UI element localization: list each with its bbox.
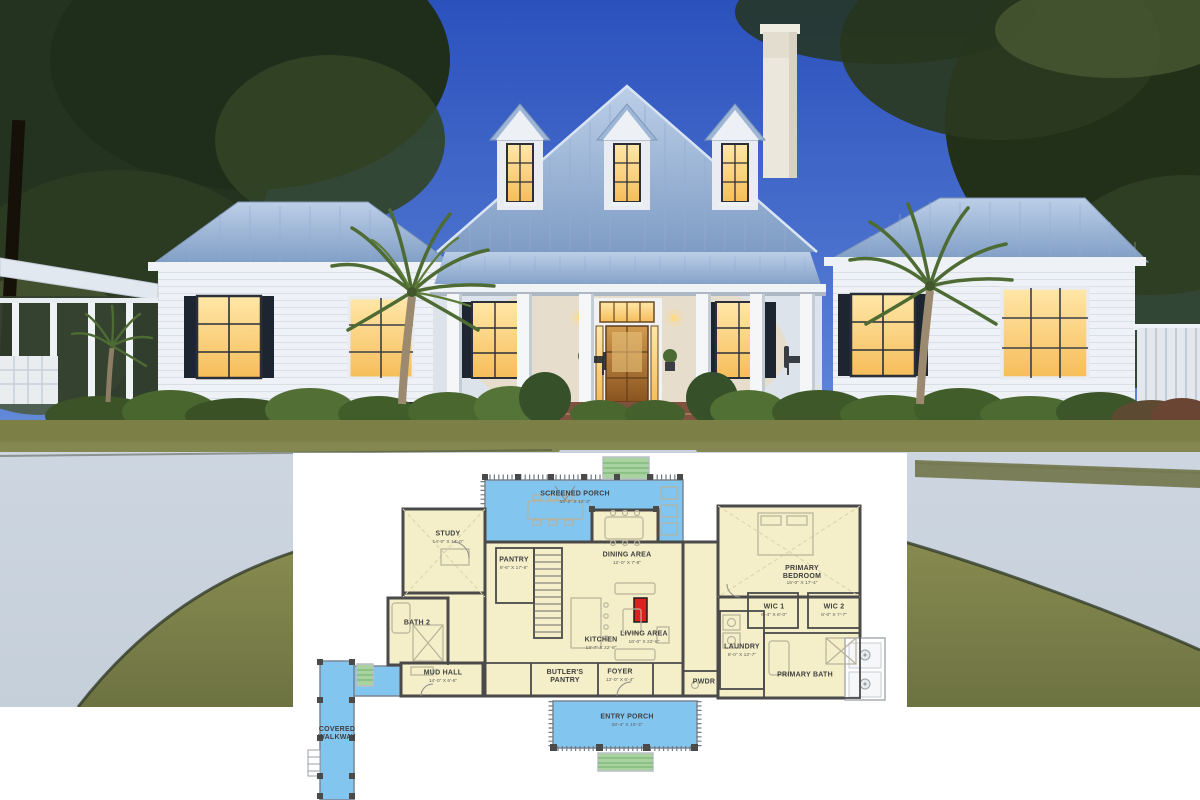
screenshot-root: SCREENED PORCH 55'-2" X 12'-3" STUDY 14'…: [0, 0, 1200, 800]
plan-steps-bottom: [598, 753, 653, 771]
plan-dining-bump: [592, 510, 658, 542]
fence-right: [1134, 324, 1200, 410]
left-wing-window-shuttered: [184, 296, 274, 378]
plan-right-vestibule: [683, 542, 718, 696]
plan-entry-porch: [553, 701, 697, 748]
plan-study: [403, 509, 485, 597]
covered-walkway-structure: [0, 258, 158, 404]
chimney: [760, 24, 800, 178]
plan-outdoor-deck: [845, 638, 885, 700]
floor-plan-drawing: [293, 453, 907, 800]
front-door: [592, 298, 662, 404]
plan-covered-walkway: [320, 661, 354, 800]
right-wing-window-shuttered: [838, 294, 928, 376]
porch-window-right: [703, 302, 776, 378]
floor-plan-overlay: SCREENED PORCH 55'-2" X 12'-3" STUDY 14'…: [293, 453, 907, 800]
right-wing-window-large: [1002, 288, 1088, 378]
plan-walkway-pier: [308, 750, 320, 776]
plan-mud-hall: [401, 663, 483, 696]
